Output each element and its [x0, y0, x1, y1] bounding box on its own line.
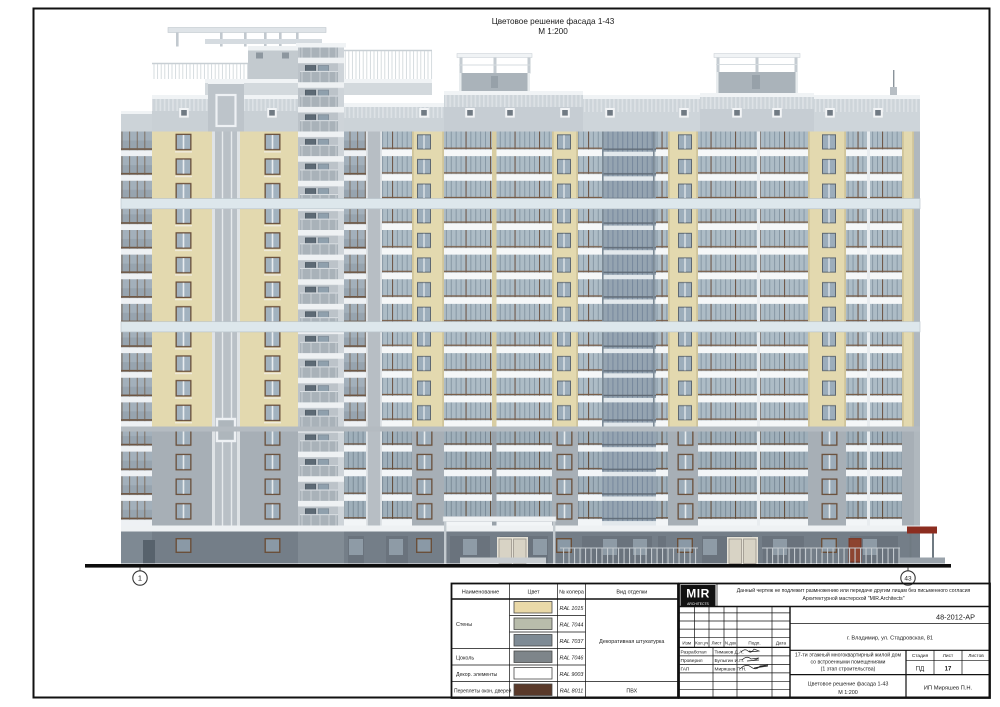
svg-text:№ колера: № колера: [559, 590, 584, 596]
svg-text:Стены: Стены: [456, 622, 472, 628]
svg-text:17: 17: [945, 667, 952, 673]
svg-text:MIR: MIR: [686, 587, 710, 601]
svg-text:Вид отделки: Вид отделки: [616, 590, 647, 596]
svg-text:Подп.: Подп.: [748, 640, 760, 645]
svg-text:М 1:200: М 1:200: [538, 27, 568, 36]
svg-text:(1 этап строительства): (1 этап строительства): [821, 667, 876, 673]
svg-text:Кол.уч: Кол.уч: [695, 640, 708, 645]
svg-text:ПД: ПД: [916, 667, 924, 673]
svg-text:48-2012-АР: 48-2012-АР: [936, 613, 975, 622]
svg-text:N.док: N.док: [725, 640, 736, 645]
svg-text:RAL 8011: RAL 8011: [560, 688, 583, 694]
svg-text:Разработал: Разработал: [681, 650, 707, 656]
svg-text:Наименование: Наименование: [462, 590, 499, 596]
svg-text:Листов: Листов: [968, 653, 984, 659]
svg-text:Изм: Изм: [682, 640, 691, 645]
svg-text:RAL 7037: RAL 7037: [560, 639, 585, 645]
svg-text:17-ти этажный многоквартирный: 17-ти этажный многоквартирный жилой дом: [795, 652, 902, 659]
svg-text:Стадия: Стадия: [912, 653, 929, 659]
svg-text:Дата: Дата: [776, 640, 787, 645]
svg-text:М 1:200: М 1:200: [838, 690, 857, 696]
svg-text:ARCHITECTS: ARCHITECTS: [687, 602, 709, 606]
svg-text:Цоколь: Цоколь: [456, 656, 474, 662]
svg-text:Декор. элементы: Декор. элементы: [456, 672, 498, 678]
svg-text:Архитектурной мастерской "MIR.: Архитектурной мастерской "MIR.Architects…: [802, 595, 904, 602]
svg-text:со встроенными помещениями: со встроенными помещениями: [811, 660, 886, 666]
svg-text:RAL 9003: RAL 9003: [560, 672, 584, 678]
svg-text:ИП Миряшев П.Н.: ИП Миряшев П.Н.: [924, 686, 973, 692]
svg-text:Цветовое решение фасада 1-43: Цветовое решение фасада 1-43: [808, 681, 889, 687]
svg-text:RAL 1015: RAL 1015: [560, 606, 585, 612]
svg-text:43: 43: [904, 576, 912, 583]
svg-text:Декоративная штукатурка: Декоративная штукатурка: [599, 639, 664, 645]
svg-text:ГАП: ГАП: [681, 667, 690, 673]
svg-text:Лист: Лист: [712, 640, 723, 645]
svg-text:Булыгин И.П.: Булыгин И.П.: [715, 658, 745, 664]
svg-text:Данный чертеж не подлежит разм: Данный чертеж не подлежит размножению ил…: [737, 587, 971, 594]
svg-text:RAL 7046: RAL 7046: [560, 656, 584, 662]
svg-text:ПВХ: ПВХ: [626, 688, 637, 694]
svg-text:Тимаков Д.А.: Тимаков Д.А.: [715, 650, 744, 656]
svg-text:Переплеты окон, дверей: Переплеты окон, дверей: [454, 687, 512, 694]
svg-text:Лист: Лист: [943, 653, 954, 659]
svg-text:Цвет: Цвет: [527, 590, 540, 596]
svg-text:г. Владимир, ул. Стадровская,: г. Владимир, ул. Стадровская, 81: [847, 636, 933, 642]
svg-text:Цветовое решение фасада 1-43: Цветовое решение фасада 1-43: [492, 17, 615, 26]
svg-text:RAL 7044: RAL 7044: [560, 623, 584, 629]
svg-text:1: 1: [138, 574, 142, 583]
svg-text:Проверил: Проверил: [681, 658, 703, 664]
